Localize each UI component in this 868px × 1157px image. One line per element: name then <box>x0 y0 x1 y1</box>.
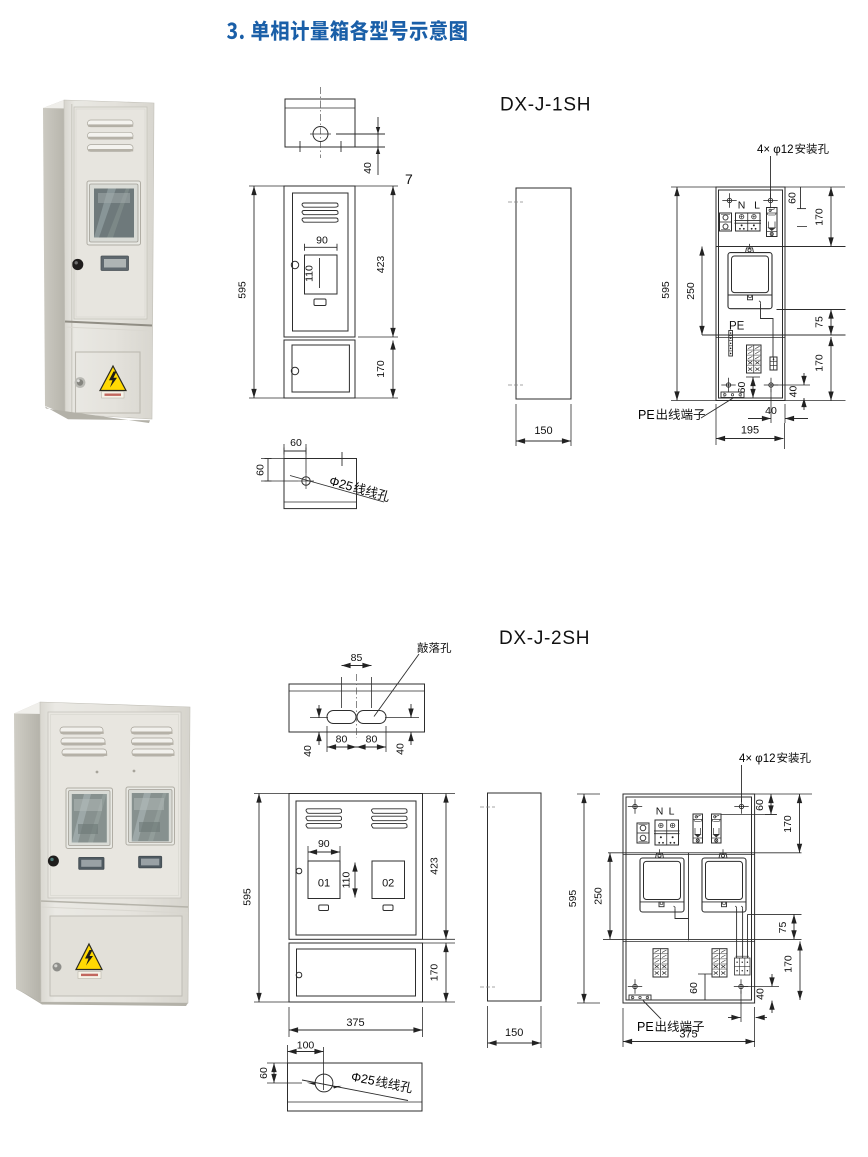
svg-text:7: 7 <box>405 171 413 187</box>
svg-text:40: 40 <box>362 162 374 174</box>
svg-text:170: 170 <box>375 360 387 378</box>
svg-text:40: 40 <box>755 988 767 1000</box>
svg-text:60: 60 <box>787 192 799 204</box>
svg-text:150: 150 <box>505 1027 523 1039</box>
svg-text:02: 02 <box>382 878 394 890</box>
svg-text:110: 110 <box>341 871 353 888</box>
svg-text:60: 60 <box>290 437 302 449</box>
svg-text:250: 250 <box>593 887 605 905</box>
svg-text:595: 595 <box>567 890 579 908</box>
svg-text:L: L <box>754 200 760 212</box>
svg-text:250: 250 <box>685 282 697 300</box>
svg-text:170: 170 <box>814 208 826 226</box>
svg-text:423: 423 <box>429 857 441 875</box>
svg-text:100: 100 <box>297 1040 315 1052</box>
svg-text:423: 423 <box>375 256 387 274</box>
svg-text:375: 375 <box>346 1017 364 1029</box>
svg-text:80: 80 <box>336 734 348 746</box>
svg-text:80: 80 <box>366 734 378 746</box>
svg-text:595: 595 <box>242 888 254 906</box>
svg-text:N: N <box>656 806 664 818</box>
svg-text:L: L <box>669 806 675 818</box>
svg-text:375: 375 <box>679 1029 697 1041</box>
svg-text:Φ25: Φ25 <box>350 1070 376 1088</box>
svg-text:40: 40 <box>302 745 314 757</box>
svg-text:40: 40 <box>395 743 407 755</box>
svg-text:595: 595 <box>660 281 672 299</box>
svg-text:170: 170 <box>783 955 795 973</box>
svg-text:DX-J-2SH: DX-J-2SH <box>499 628 590 649</box>
svg-text:90: 90 <box>318 838 330 850</box>
svg-text:60: 60 <box>255 464 267 476</box>
svg-text:170: 170 <box>429 964 441 982</box>
svg-text:195: 195 <box>741 425 759 437</box>
svg-text:90: 90 <box>316 235 328 247</box>
svg-text:110: 110 <box>304 265 316 282</box>
svg-text:75: 75 <box>814 316 826 328</box>
svg-text:75: 75 <box>777 922 789 934</box>
svg-text:150: 150 <box>534 425 552 437</box>
svg-text:Φ25: Φ25 <box>328 474 355 494</box>
svg-text:DX-J-1SH: DX-J-1SH <box>500 95 591 116</box>
svg-text:170: 170 <box>782 815 794 833</box>
svg-text:60: 60 <box>754 799 766 811</box>
svg-text:N: N <box>738 200 746 212</box>
svg-text:4× φ12: 4× φ12 <box>757 144 794 156</box>
svg-text:01: 01 <box>318 878 330 890</box>
svg-text:60: 60 <box>688 982 700 994</box>
svg-text:40: 40 <box>788 386 800 398</box>
svg-text:PE: PE <box>638 408 655 422</box>
svg-text:595: 595 <box>237 281 249 299</box>
svg-text:170: 170 <box>814 354 826 372</box>
svg-text:85: 85 <box>351 652 363 664</box>
svg-text:4× φ12: 4× φ12 <box>739 753 776 765</box>
svg-text:60: 60 <box>258 1067 270 1079</box>
svg-text:PE: PE <box>637 1020 654 1034</box>
